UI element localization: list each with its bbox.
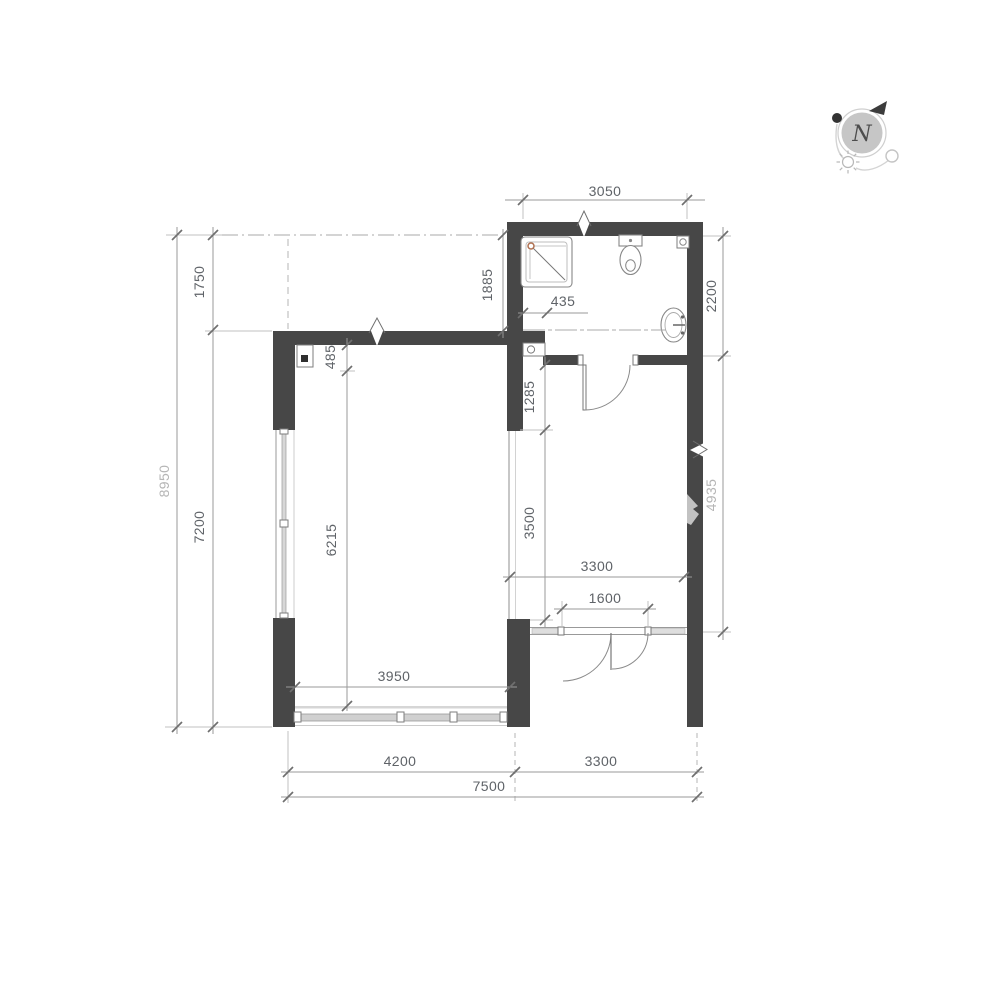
- basin-tap-dot: [681, 331, 684, 334]
- dim-label-living-length: 6215: [323, 524, 339, 557]
- sidelight-panel: [651, 629, 685, 635]
- wall-break-outline: [369, 318, 385, 333]
- dim-label-top-width: 3050: [589, 183, 622, 199]
- toilet: [619, 235, 642, 275]
- east-wall: [687, 222, 703, 727]
- floor-plan-svg: 3050 1885 435 2200 8950 1750 7200 485 62…: [0, 0, 1000, 1000]
- door-leaf: [583, 365, 586, 410]
- plumbing-shaft: [523, 343, 545, 356]
- shower-tray: [521, 237, 572, 287]
- toilet-button: [629, 239, 632, 242]
- west-window: [273, 429, 295, 618]
- door-swing-arc: [563, 633, 611, 681]
- vent-box: [677, 236, 689, 248]
- window-cap: [280, 429, 288, 434]
- compass-dot-icon: [832, 113, 842, 123]
- wash-basin: [661, 308, 686, 342]
- sun-icon: [837, 151, 860, 174]
- dimension-labels: 3050 1885 435 2200 8950 1750 7200 485 62…: [156, 183, 719, 794]
- witness-lines: [165, 193, 731, 803]
- living-north-wall: [273, 331, 545, 345]
- dim-label-shaft: 435: [551, 293, 576, 309]
- dim-label-bottom-hall: 3300: [585, 753, 618, 769]
- compass-group: N: [832, 101, 898, 174]
- basin-tap-dot: [681, 315, 684, 318]
- dim-label-left-total: 8950: [156, 465, 172, 498]
- dim-label-bath-side: 1885: [479, 269, 495, 302]
- window-sill-line: [295, 706, 507, 709]
- door-jamb: [558, 627, 564, 635]
- shower-drain-icon: [528, 243, 534, 249]
- dim-label-living-window: 3950: [378, 668, 411, 684]
- bathroom-south-wall-left: [543, 355, 578, 365]
- compass-arc: [856, 160, 889, 170]
- compass-open-circle-icon: [886, 150, 898, 162]
- window-post: [500, 712, 507, 722]
- window-mullion: [280, 520, 288, 527]
- dim-label-bath-depth: 2200: [703, 280, 719, 313]
- bathroom-door: [578, 355, 638, 410]
- dim-label-column: 485: [322, 345, 338, 370]
- bathroom-south-wall-right: [638, 355, 687, 365]
- door-swing-arc: [612, 633, 648, 669]
- shaft-box: [523, 343, 545, 356]
- dim-label-hall-width: 3300: [581, 558, 614, 574]
- dim-label-entry-door: 1600: [589, 590, 622, 606]
- window-cap: [280, 613, 288, 618]
- south-window: [294, 706, 507, 726]
- dimension-ticks: [172, 195, 728, 802]
- dim-label-left-offset: 1750: [191, 266, 207, 299]
- door-swing-arc: [585, 365, 630, 410]
- interior-wall-pillar: [507, 619, 530, 727]
- entry-double-door: [563, 633, 648, 681]
- column-dot: [301, 355, 308, 362]
- bathroom-north-wall: [507, 222, 703, 236]
- door-jamb: [578, 355, 583, 365]
- floor-plan-page: 3050 1885 435 2200 8950 1750 7200 485 62…: [0, 0, 1000, 1000]
- north-letter: N: [851, 122, 872, 147]
- door-jamb: [633, 355, 638, 365]
- dim-label-bottom-total: 7500: [473, 778, 506, 794]
- doors-group: [563, 355, 648, 681]
- west-wall-lower: [273, 618, 295, 727]
- dim-label-left-height: 7200: [191, 511, 207, 544]
- dim-label-hall-wall: 1285: [521, 381, 537, 414]
- sidelight-panel: [532, 629, 558, 635]
- dim-label-hall-height: 4935: [703, 479, 719, 512]
- column-marker: [297, 345, 313, 367]
- window-post: [294, 712, 301, 722]
- dim-label-opening: 3500: [521, 507, 537, 540]
- window-post: [397, 712, 404, 722]
- window-post: [450, 712, 457, 722]
- west-wall-upper: [273, 331, 295, 430]
- north-arrow-icon: [869, 101, 887, 115]
- dim-label-bottom-living: 4200: [384, 753, 417, 769]
- entry-threshold: [530, 627, 687, 635]
- room-opening: [509, 431, 516, 619]
